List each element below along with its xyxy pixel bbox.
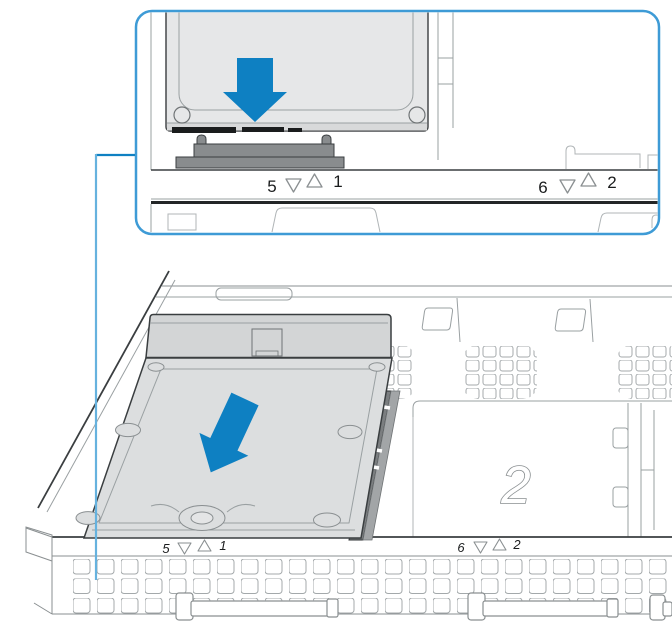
slot-1-label: 1 xyxy=(219,538,226,553)
bay-2-number: 2 xyxy=(500,456,530,515)
hard-drive-rear-face xyxy=(146,315,391,358)
main-view: 2 5 1 xyxy=(26,271,672,620)
slot-6-label: 6 xyxy=(538,178,547,197)
slot-label-5-1: 5 1 xyxy=(162,538,226,556)
slot-2-label: 2 xyxy=(607,173,616,192)
vent-cluster xyxy=(463,345,537,399)
triangle-up-icon xyxy=(493,539,506,550)
vent-cluster xyxy=(617,345,672,399)
drive-rear-tab xyxy=(252,329,282,356)
triangle-down-icon xyxy=(474,542,487,553)
slot-6-label: 6 xyxy=(457,540,465,555)
triangle-up-icon xyxy=(198,540,211,551)
front-bezel xyxy=(26,527,672,620)
slot-5-label: 5 xyxy=(162,541,170,556)
detail-inset: 5 1 6 2 xyxy=(136,0,660,234)
floor-cutout xyxy=(555,309,585,331)
slot-5-label: 5 xyxy=(267,177,276,196)
slot-label-6-2: 6 2 xyxy=(457,537,521,555)
slot-2-label: 2 xyxy=(512,537,521,552)
drive-installation-illustration: 2 5 1 xyxy=(0,0,672,640)
hard-drive xyxy=(76,315,392,539)
rear-handle-cutout xyxy=(216,288,292,300)
inset-hard-drive xyxy=(166,0,428,133)
slot-1-label: 1 xyxy=(333,172,342,191)
floor-cutout xyxy=(422,308,452,330)
drive-bay-divider xyxy=(613,403,654,537)
drive-bay-2: 2 xyxy=(413,401,672,537)
triangle-down-icon xyxy=(178,543,191,554)
